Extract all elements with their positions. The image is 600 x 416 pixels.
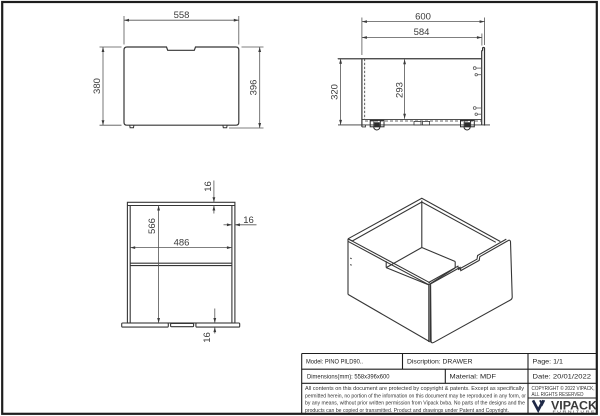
svg-text:COPYRIGHT © 2022 VIPACK,: COPYRIGHT © 2022 VIPACK, <box>532 385 595 392</box>
svg-text:F U R N I T U R E: F U R N I T U R E <box>553 410 596 413</box>
svg-text:396: 396 <box>249 80 260 96</box>
svg-text:All contents on this document: All contents on this document are protec… <box>305 386 524 392</box>
svg-text:558: 558 <box>174 10 190 21</box>
svg-text:Model: PINO PILD90..: Model: PINO PILD90.. <box>306 359 363 366</box>
svg-text:Material: MDF: Material: MDF <box>450 373 497 380</box>
svg-text:600: 600 <box>415 11 431 22</box>
svg-text:16: 16 <box>203 181 214 192</box>
svg-text:products can be copied or tran: products can be copied or transmitted. P… <box>305 408 509 414</box>
svg-text:Date: 20/01/2022: Date: 20/01/2022 <box>533 373 592 380</box>
svg-text:584: 584 <box>414 27 430 38</box>
svg-text:ALL RIGHTS RESERVED: ALL RIGHTS RESERVED <box>532 392 584 398</box>
svg-text:Page: 1/1: Page: 1/1 <box>533 359 564 366</box>
svg-text:486: 486 <box>174 238 190 249</box>
svg-text:permitted herein, no portion o: permitted herein, no portion of the info… <box>305 393 526 399</box>
svg-text:293: 293 <box>395 82 406 98</box>
svg-text:Dimensions(mm): 558x396x600: Dimensions(mm): 558x396x600 <box>307 373 390 380</box>
svg-text:380: 380 <box>92 78 103 94</box>
svg-text:by any means, without prior wr: by any means, without prior written perm… <box>305 401 525 407</box>
svg-text:Discription: DRAWER: Discription: DRAWER <box>407 359 473 366</box>
svg-text:320: 320 <box>329 84 340 100</box>
svg-text:566: 566 <box>147 218 158 234</box>
svg-text:16: 16 <box>202 332 213 343</box>
svg-text:16: 16 <box>243 215 254 226</box>
